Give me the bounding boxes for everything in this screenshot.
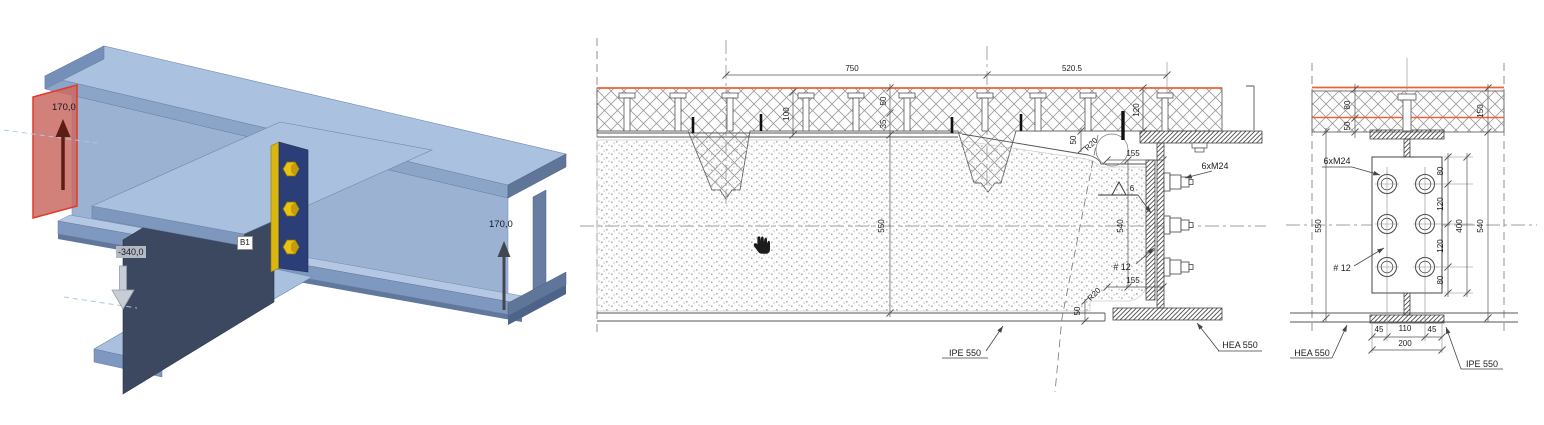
bolt-assemblies	[1164, 173, 1193, 276]
label-HEA550: HEA 550	[1222, 340, 1258, 350]
bolt-nut-profile	[1181, 177, 1189, 187]
bolt-nut-profile	[1189, 223, 1193, 228]
dim-45-right: 45	[1428, 325, 1437, 334]
hea-top-flange-section	[1140, 131, 1262, 143]
label-IPE550: IPE 550	[1466, 359, 1498, 369]
shear-stud-head	[619, 93, 635, 98]
shear-stud-shank	[853, 98, 859, 131]
cad-app-canvas: { "scene": {"background": "#ffffff"}, "c…	[0, 0, 1544, 425]
dim-150-slab: 150	[1476, 104, 1485, 118]
leader-line	[1197, 323, 1219, 351]
fin-plate-yellow-edge	[271, 142, 279, 272]
viewport-3d[interactable]	[4, 46, 566, 394]
bolt-nut-profile	[1181, 262, 1189, 272]
dim-550-beam-depth: 550	[1314, 219, 1323, 233]
dim-50-bottom-notch: 50	[1073, 306, 1082, 315]
shear-stud-head	[1030, 93, 1046, 98]
dim-200-plate-width: 200	[1398, 339, 1412, 348]
shear-stud-shank	[675, 98, 681, 131]
dim-50-slab: 50	[1343, 121, 1352, 130]
shear-stud-shank	[624, 98, 630, 131]
bolt-nut-profile	[1164, 258, 1170, 276]
bolt-spec-6xM24: 6xM24	[1323, 156, 1350, 166]
dim-155-top: 155	[1126, 149, 1140, 158]
dim-540-plate: 540	[1476, 219, 1485, 233]
shear-stud-head	[899, 93, 915, 98]
dim-120-pitch-top: 120	[1436, 197, 1445, 211]
shear-stud-shank	[904, 98, 910, 131]
dim-45-left: 45	[1375, 325, 1384, 334]
dim-80-edge-bottom: 80	[1436, 275, 1445, 284]
dim-80-edge-top: 80	[1436, 166, 1445, 175]
dim-label-vertical-offset: -340,0	[116, 246, 146, 258]
dim-550-beam-depth: 550	[877, 219, 886, 233]
shear-stud-shank	[982, 98, 988, 131]
bolt-nut-profile	[1170, 260, 1181, 274]
slab-edge-angle	[1246, 86, 1254, 130]
section-drawing-longitudinal[interactable]: 750520.5100503555012050R20155540155R2050…	[580, 38, 1266, 392]
shear-stud-head	[798, 93, 814, 98]
shear-stud-shank	[1162, 98, 1168, 131]
dim-120-pitch-bottom: 120	[1436, 239, 1445, 253]
shear-stud-shank	[1403, 100, 1411, 131]
bolt-nut-profile	[1164, 216, 1170, 234]
bolt-nut-profile	[1189, 265, 1193, 270]
shear-stud-head	[1157, 93, 1173, 98]
beam-elevation-stipple	[597, 140, 1146, 311]
dim-540-bolt-pitch: 540	[1116, 219, 1125, 233]
shear-stud-head	[1080, 93, 1096, 98]
bolt-spec-6xM24: 6xM24	[1201, 161, 1228, 171]
weld-size-6: 6	[1130, 184, 1135, 193]
dim-520p5: 520.5	[1062, 64, 1083, 73]
dim-100: 100	[782, 107, 791, 121]
bolt-nut-profile	[1181, 220, 1189, 230]
shear-stud-head	[848, 93, 864, 98]
dim-50-topping: 50	[879, 96, 888, 105]
shear-stud-shank	[1035, 98, 1041, 131]
dim-400-bolt-group: 400	[1455, 219, 1464, 233]
dim-155-bottom: 155	[1126, 276, 1140, 285]
bottom-flange-lines	[597, 313, 1105, 321]
end-plate-section	[1146, 160, 1155, 300]
shear-stud-shank	[1085, 98, 1091, 131]
dim-50-notch: 50	[1069, 135, 1078, 144]
shear-stud-head	[722, 93, 738, 98]
bolt-nut-profile	[1189, 180, 1193, 185]
hea-bottom-flange-section	[1113, 308, 1222, 320]
ipe-bottom-flange-section	[1370, 315, 1444, 323]
leader-line	[1332, 325, 1347, 358]
bolt-nut-profile	[1164, 173, 1170, 191]
shear-stud-shank	[727, 98, 733, 131]
shear-stud-head	[977, 93, 993, 98]
label-IPE550: IPE 550	[949, 348, 981, 358]
dim-label-end-offset: 170,0	[489, 219, 513, 230]
shear-stud-head	[670, 93, 686, 98]
dim-35-deck: 35	[879, 119, 888, 128]
plate-thickness-12: # 12	[1113, 262, 1131, 272]
label-HEA550: HEA 550	[1294, 348, 1330, 358]
shear-stud-shank	[803, 98, 809, 131]
dim-80-slab: 80	[1343, 100, 1352, 109]
bolt-nut-profile	[1170, 175, 1181, 189]
plate-thickness-12: # 12	[1333, 263, 1351, 273]
dim-120-notch: 120	[1132, 103, 1141, 117]
leader-line	[986, 326, 1003, 351]
bolt-nut-profile	[1170, 218, 1181, 232]
leader-line	[1446, 327, 1461, 369]
label-tails	[942, 351, 1262, 358]
stud-nut-under-flange	[1192, 143, 1207, 152]
dim-750: 750	[845, 64, 859, 73]
leader-line	[1185, 171, 1212, 178]
beam-tag-b1[interactable]: B1	[237, 236, 253, 250]
section-drawing-end-view[interactable]: 8050150550801201208040054045110452006xM2…	[1286, 58, 1537, 369]
dim-110-gauge: 110	[1399, 324, 1412, 333]
hea-web-section	[1157, 143, 1164, 308]
drawing-canvas: 750520.5100503555012050R20155540155R2050…	[0, 0, 1544, 425]
shear-stud-head	[1398, 94, 1416, 100]
dim-label-start-offset: 170,0	[52, 102, 76, 113]
